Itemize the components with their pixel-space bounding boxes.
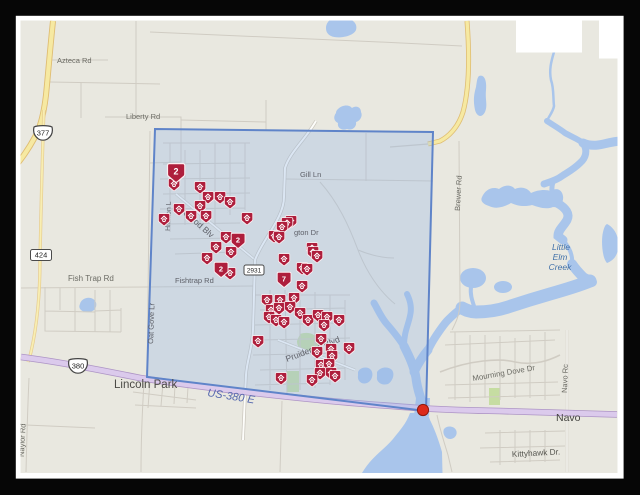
svg-text:Creek: Creek	[549, 262, 572, 272]
svg-text:Azteca Rd: Azteca Rd	[57, 56, 92, 65]
svg-text:Gill Ln: Gill Ln	[300, 170, 321, 179]
svg-text:380: 380	[72, 362, 85, 371]
svg-text:Navo: Navo	[556, 412, 581, 424]
svg-text:377: 377	[37, 129, 50, 138]
svg-text:Brewer Rd: Brewer Rd	[453, 175, 464, 211]
svg-text:2: 2	[236, 235, 240, 244]
svg-text:7: 7	[282, 274, 286, 283]
svg-text:Navo Rc: Navo Rc	[560, 364, 570, 393]
svg-text:2: 2	[173, 167, 178, 177]
svg-text:Oat Gove Lr: Oat Gove Lr	[146, 302, 156, 344]
svg-text:2931: 2931	[247, 268, 262, 275]
svg-text:Fish Trap Rd: Fish Trap Rd	[68, 274, 114, 283]
svg-text:Little: Little	[552, 242, 570, 252]
svg-text:gton Dr: gton Dr	[294, 228, 319, 237]
svg-text:Liberty Rd: Liberty Rd	[126, 112, 160, 121]
svg-text:Fishtrap Rd: Fishtrap Rd	[175, 276, 214, 285]
svg-text:Lincoln Park: Lincoln Park	[114, 379, 178, 391]
svg-text:424: 424	[35, 251, 48, 260]
svg-text:2: 2	[219, 264, 223, 273]
svg-text:Elm: Elm	[553, 252, 568, 262]
